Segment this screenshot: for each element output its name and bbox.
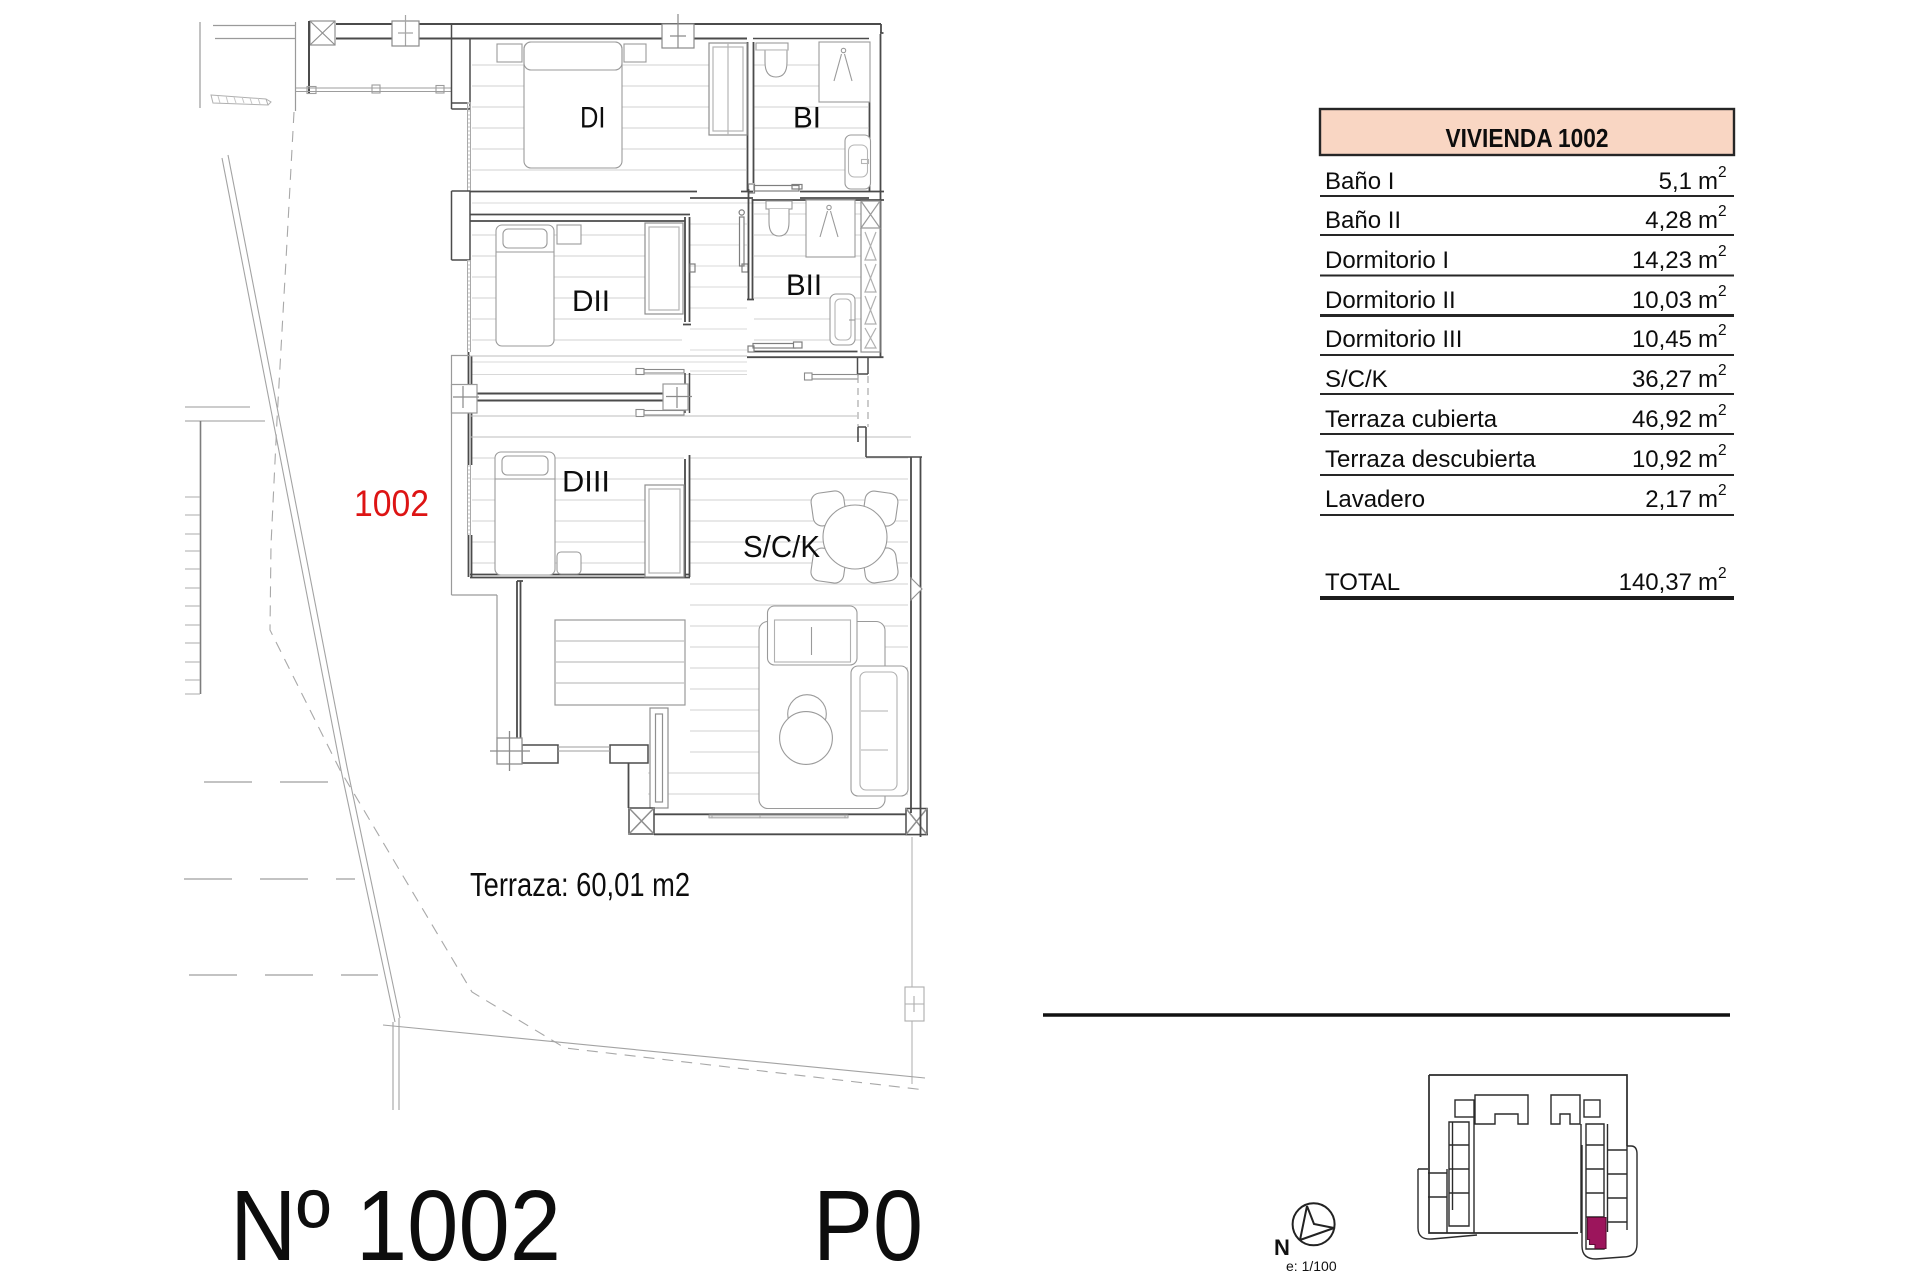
svg-text:46,92: 46,92: [1632, 406, 1692, 433]
svg-text:2: 2: [1718, 322, 1727, 339]
svg-text:10,92: 10,92: [1632, 446, 1692, 473]
svg-text:Nº 1002: Nº 1002: [230, 1170, 561, 1280]
svg-text:N: N: [1274, 1235, 1290, 1260]
svg-text:140,37: 140,37: [1619, 569, 1692, 596]
svg-text:m: m: [1698, 168, 1718, 195]
svg-text:Dormitorio II: Dormitorio II: [1325, 287, 1456, 314]
svg-text:m: m: [1698, 569, 1718, 596]
svg-text:m: m: [1698, 366, 1718, 393]
svg-text:m: m: [1698, 406, 1718, 433]
svg-text:Terraza cubierta: Terraza cubierta: [1325, 406, 1498, 433]
svg-text:1002: 1002: [354, 482, 429, 524]
svg-text:Baño II: Baño II: [1325, 207, 1401, 234]
svg-text:2: 2: [1718, 243, 1727, 260]
svg-text:Lavadero: Lavadero: [1325, 486, 1425, 513]
svg-text:Terraza descubierta: Terraza descubierta: [1325, 446, 1536, 473]
svg-text:VIVIENDA 1002: VIVIENDA 1002: [1446, 123, 1609, 153]
svg-text:m: m: [1698, 486, 1718, 513]
svg-text:2: 2: [1718, 362, 1727, 379]
svg-text:S/C/K: S/C/K: [743, 529, 820, 564]
svg-text:2: 2: [1718, 442, 1727, 459]
svg-text:14,23: 14,23: [1632, 247, 1692, 274]
svg-text:m: m: [1698, 446, 1718, 473]
svg-text:2: 2: [1718, 203, 1727, 220]
svg-text:36,27: 36,27: [1632, 366, 1692, 393]
svg-text:P0: P0: [813, 1170, 923, 1280]
svg-text:Terraza: 60,01 m2: Terraza: 60,01 m2: [470, 867, 690, 904]
svg-text:DI: DI: [580, 102, 606, 135]
svg-text:m: m: [1698, 326, 1718, 353]
svg-text:4,28: 4,28: [1645, 207, 1692, 234]
svg-text:e: 1/100: e: 1/100: [1286, 1258, 1337, 1274]
svg-text:DIII: DIII: [562, 466, 610, 499]
svg-text:m: m: [1698, 287, 1718, 314]
svg-text:BII: BII: [786, 269, 822, 302]
svg-text:TOTAL: TOTAL: [1325, 569, 1400, 596]
svg-text:BI: BI: [793, 102, 821, 135]
svg-text:5,1: 5,1: [1659, 168, 1692, 195]
svg-text:2: 2: [1718, 283, 1727, 300]
svg-text:m: m: [1698, 207, 1718, 234]
svg-text:Baño I: Baño I: [1325, 168, 1394, 195]
svg-text:2: 2: [1718, 565, 1727, 582]
svg-text:2,17: 2,17: [1645, 486, 1692, 513]
svg-text:2: 2: [1718, 164, 1727, 181]
svg-text:S/C/K: S/C/K: [1325, 366, 1388, 393]
svg-text:Dormitorio III: Dormitorio III: [1325, 326, 1462, 353]
svg-text:10,03: 10,03: [1632, 287, 1692, 314]
svg-text:10,45: 10,45: [1632, 326, 1692, 353]
svg-text:Dormitorio I: Dormitorio I: [1325, 247, 1449, 274]
svg-text:DII: DII: [572, 285, 610, 318]
svg-text:2: 2: [1718, 402, 1727, 419]
svg-text:m: m: [1698, 247, 1718, 274]
svg-text:2: 2: [1718, 482, 1727, 499]
